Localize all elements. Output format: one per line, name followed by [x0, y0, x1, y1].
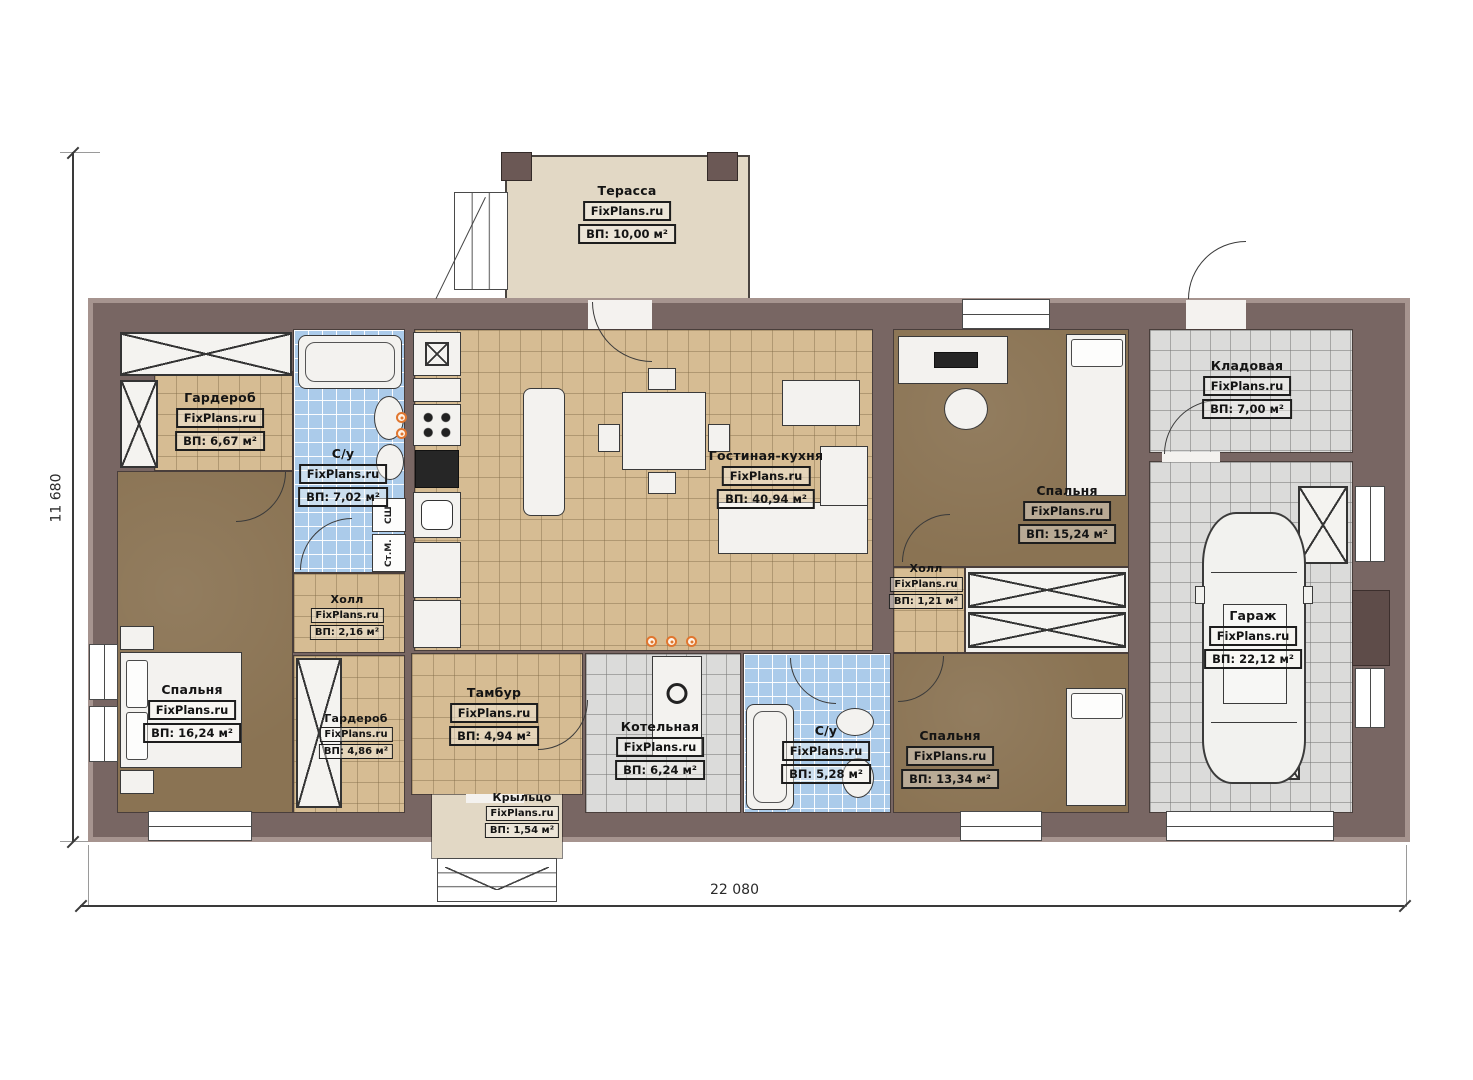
kitchen-counter	[413, 600, 461, 648]
brand-box: FixPlans.ru	[889, 577, 962, 592]
dining-chair	[648, 368, 676, 390]
room-name: Холл	[331, 593, 364, 606]
brand-box: FixPlans.ru	[1209, 626, 1298, 646]
brand-box: FixPlans.ru	[906, 746, 995, 766]
floor-plan-canvas: 11 680 22 080	[0, 0, 1473, 1080]
kitchen-sink-icon	[413, 492, 461, 538]
room-label-garage: Гараж FixPlans.ru ВП: 22,12 м²	[1204, 608, 1302, 669]
area-box: ВП: 6,67 м²	[175, 431, 265, 451]
car-mirror	[1195, 586, 1205, 604]
radiator-icon	[396, 428, 407, 439]
monitor	[934, 352, 978, 368]
terrace-stairs	[454, 192, 508, 290]
dimension-line-horizontal	[80, 905, 1404, 907]
area-box: ВП: 22,12 м²	[1204, 649, 1302, 669]
window-left-1	[89, 644, 118, 700]
room-name: Гардероб	[324, 712, 387, 725]
area-box: ВП: 1,21 м²	[889, 594, 963, 609]
gas-valve-icon	[646, 636, 657, 647]
kitchen-counter	[413, 378, 461, 402]
room-name: С/у	[815, 723, 838, 738]
room-label-bedroom-3: Спальня FixPlans.ru ВП: 13,34 м²	[901, 728, 999, 789]
room-label-bath-1: С/у FixPlans.ru ВП: 7,02 м²	[298, 446, 388, 507]
terrace-column	[501, 152, 532, 181]
chimney-block	[1352, 590, 1390, 666]
door-arc-entrance	[1188, 241, 1246, 299]
area-box: ВП: 10,00 м²	[578, 224, 676, 244]
extension-line	[1406, 845, 1407, 907]
radiator-icon	[396, 412, 407, 423]
room-label-storage: Кладовая FixPlans.ru ВП: 7,00 м²	[1202, 358, 1292, 419]
washer-box: Ст.М.	[372, 534, 406, 572]
dining-table	[622, 392, 706, 470]
garage-gate	[1166, 811, 1334, 841]
area-box: ВП: 7,00 м²	[1202, 399, 1292, 419]
brand-box: FixPlans.ru	[450, 703, 539, 723]
gas-valve-icon	[666, 636, 677, 647]
terrace-column	[707, 152, 738, 181]
area-box: ВП: 7,02 м²	[298, 487, 388, 507]
sofa-chaise	[820, 446, 868, 506]
oven-appliance	[415, 450, 459, 488]
window-top	[962, 299, 1050, 329]
room-label-hall-1: Холл FixPlans.ru ВП: 1,21 м²	[889, 562, 963, 609]
room-label-living-kitchen: Гостиная-кухня FixPlans.ru ВП: 40,94 м²	[709, 448, 823, 509]
room-label-bath-2: С/у FixPlans.ru ВП: 5,28 м²	[781, 723, 871, 784]
brand-box: FixPlans.ru	[782, 741, 871, 761]
brand-box: FixPlans.ru	[722, 466, 811, 486]
area-box: ВП: 16,24 м²	[143, 723, 241, 743]
room-label-tambour: Тамбур FixPlans.ru ВП: 4,94 м²	[449, 685, 539, 746]
room-name: Кладовая	[1211, 358, 1283, 373]
extension-line	[88, 845, 89, 907]
kitchen-hob-cross	[425, 342, 449, 366]
car-rear-line	[1211, 722, 1297, 723]
room-label-wardrobe-1: Гардероб FixPlans.ru ВП: 6,67 м²	[175, 390, 265, 451]
wardrobe-cabinet	[120, 332, 292, 376]
extension-line	[60, 152, 100, 153]
brand-box: FixPlans.ru	[310, 608, 383, 623]
room-name: Спальня	[919, 728, 980, 743]
garage-rack	[1298, 486, 1348, 564]
room-name: Гардероб	[184, 390, 256, 405]
desk-chair	[944, 388, 988, 430]
dining-chair	[598, 424, 620, 452]
room-name: Спальня	[161, 682, 222, 697]
room-name: Крыльцо	[493, 791, 552, 804]
brand-box: FixPlans.ru	[1203, 376, 1292, 396]
nightstand	[120, 626, 154, 650]
area-box: ВП: 13,34 м²	[901, 769, 999, 789]
brand-box: FixPlans.ru	[583, 201, 672, 221]
entrance-door-opening	[1186, 300, 1246, 329]
area-box: ВП: 1,54 м²	[485, 823, 559, 838]
brand-box: FixPlans.ru	[485, 806, 558, 821]
area-box: ВП: 2,16 м²	[310, 625, 384, 640]
brand-box: FixPlans.ru	[319, 727, 392, 742]
room-name: Котельная	[621, 719, 700, 734]
pillow	[1071, 693, 1123, 719]
car-mirror	[1303, 586, 1313, 604]
dimension-line-vertical	[72, 152, 74, 842]
room-label-terrace: Терасса FixPlans.ru ВП: 10,00 м²	[578, 183, 676, 244]
room-name: Холл	[910, 562, 943, 575]
brand-box: FixPlans.ru	[299, 464, 388, 484]
area-box: ВП: 40,94 м²	[717, 489, 815, 509]
brand-box: FixPlans.ru	[148, 700, 237, 720]
stove-icon	[413, 404, 461, 446]
room-label-bedroom-1: Спальня FixPlans.ru ВП: 16,24 м²	[143, 682, 241, 743]
window-left-2	[89, 706, 118, 762]
kitchen-island	[523, 388, 565, 516]
gas-valve-icon	[686, 636, 697, 647]
dimension-height-label: 11 680	[49, 474, 65, 523]
pillow	[1071, 339, 1123, 367]
area-box: ВП: 6,24 м²	[615, 760, 705, 780]
window-right-2	[1355, 668, 1385, 728]
room-label-wardrobe-2: Гардероб FixPlans.ru ВП: 4,86 м²	[319, 712, 393, 759]
nightstand	[120, 770, 154, 794]
window-bottom-right	[960, 811, 1042, 841]
room-name: Спальня	[1036, 483, 1097, 498]
dining-chair	[648, 472, 676, 494]
brand-box: FixPlans.ru	[176, 408, 265, 428]
wardrobe-cabinet	[968, 612, 1126, 648]
sofa	[718, 502, 868, 554]
car-windshield-line	[1211, 572, 1297, 573]
room-name: Терасса	[597, 183, 656, 198]
window-bottom-left	[148, 811, 252, 841]
porch-steps	[437, 858, 557, 902]
room-name: С/у	[332, 446, 355, 461]
room-label-porch: Крыльцо FixPlans.ru ВП: 1,54 м²	[485, 791, 559, 838]
wardrobe-cabinet	[120, 380, 158, 468]
area-box: ВП: 4,86 м²	[319, 744, 393, 759]
room-name: Тамбур	[467, 685, 521, 700]
area-box: ВП: 5,28 м²	[781, 764, 871, 784]
dimension-width-label: 22 080	[710, 882, 759, 898]
room-label-boiler-room: Котельная FixPlans.ru ВП: 6,24 м²	[615, 719, 705, 780]
room-label-bedroom-2: Спальня FixPlans.ru ВП: 15,24 м²	[1018, 483, 1116, 544]
room-name: Гараж	[1229, 608, 1276, 623]
wardrobe-cabinet	[968, 572, 1126, 608]
area-box: ВП: 4,94 м²	[449, 726, 539, 746]
window-right-1	[1355, 486, 1385, 562]
area-box: ВП: 15,24 м²	[1018, 524, 1116, 544]
shower-tray	[298, 335, 402, 389]
tv-cabinet	[782, 380, 860, 426]
kitchen-counter	[413, 542, 461, 598]
brand-box: FixPlans.ru	[1023, 501, 1112, 521]
room-label-hall-2: Холл FixPlans.ru ВП: 2,16 м²	[310, 593, 384, 640]
room-name: Гостиная-кухня	[709, 448, 823, 463]
brand-box: FixPlans.ru	[616, 737, 705, 757]
